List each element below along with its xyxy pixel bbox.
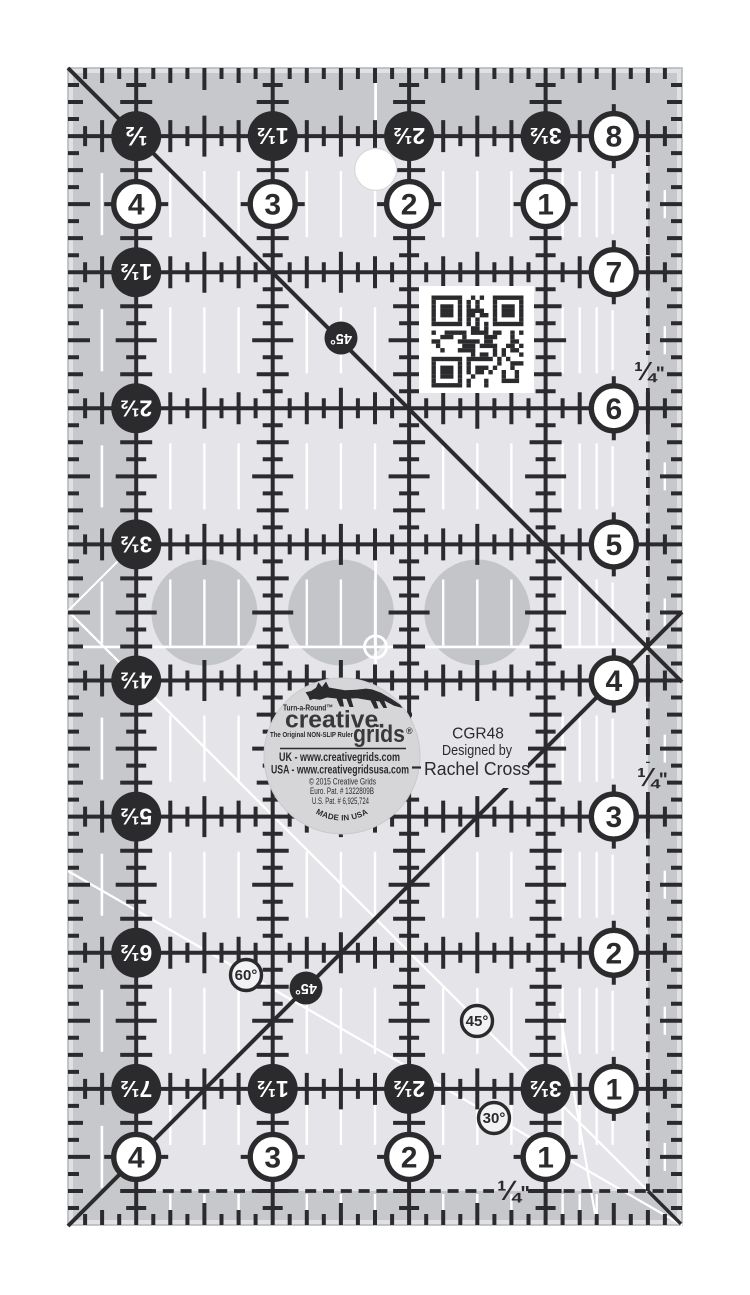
svg-text:Designed by: Designed by	[442, 742, 512, 759]
svg-text:3½: 3½	[530, 123, 562, 149]
svg-text:2: 2	[401, 189, 418, 222]
svg-text:4: 4	[605, 665, 622, 698]
svg-text:5: 5	[605, 529, 622, 562]
svg-text:2: 2	[605, 937, 622, 970]
svg-text:8: 8	[605, 121, 622, 154]
svg-text:½: ½	[125, 121, 148, 151]
svg-text:UK - www.creativegrids.com: UK - www.creativegrids.com	[279, 752, 400, 764]
svg-text:U.S. Pat. # 6,925,724: U.S. Pat. # 6,925,724	[312, 796, 369, 806]
svg-text:45°: 45°	[295, 980, 317, 996]
svg-text:Rachel Cross: Rachel Cross	[424, 758, 530, 779]
svg-text:1: 1	[605, 1073, 622, 1106]
svg-text:3: 3	[264, 1141, 281, 1174]
svg-text:3: 3	[264, 189, 281, 222]
svg-text:2½: 2½	[120, 395, 152, 421]
svg-text:1: 1	[537, 189, 554, 222]
svg-text:The Original NON-SLIP Ruler: The Original NON-SLIP Ruler	[270, 730, 353, 739]
svg-text:45°: 45°	[466, 1013, 489, 1030]
svg-text:2½: 2½	[393, 1076, 425, 1102]
svg-text:®: ®	[406, 726, 413, 736]
svg-text:3½: 3½	[530, 1076, 562, 1102]
svg-text:3½: 3½	[120, 531, 152, 557]
svg-text:1: 1	[537, 1141, 554, 1174]
svg-text:1½: 1½	[257, 123, 289, 149]
svg-text:7½: 7½	[120, 1076, 152, 1102]
svg-text:3: 3	[605, 801, 622, 834]
svg-text:6: 6	[605, 393, 622, 426]
svg-text:4: 4	[128, 189, 145, 222]
svg-text:4½: 4½	[120, 668, 152, 694]
svg-text:grids: grids	[353, 721, 405, 748]
svg-text:60°: 60°	[235, 967, 258, 984]
svg-text:7: 7	[605, 257, 622, 290]
svg-text:30°: 30°	[483, 1110, 506, 1127]
svg-text:1½: 1½	[120, 259, 152, 285]
svg-text:Euro. Pat. # 1322809B: Euro. Pat. # 1322809B	[310, 786, 374, 796]
svg-text:2: 2	[401, 1141, 418, 1174]
svg-text:6½: 6½	[120, 940, 152, 966]
svg-text:CGR48: CGR48	[452, 726, 504, 743]
svg-text:5½: 5½	[120, 804, 152, 830]
svg-text:2½: 2½	[393, 123, 425, 149]
svg-text:USA - www.creativegridsusa.com: USA - www.creativegridsusa.com	[271, 765, 409, 777]
svg-text:45°: 45°	[330, 330, 352, 346]
svg-text:1½: 1½	[257, 1076, 289, 1102]
svg-text:4: 4	[128, 1141, 145, 1174]
